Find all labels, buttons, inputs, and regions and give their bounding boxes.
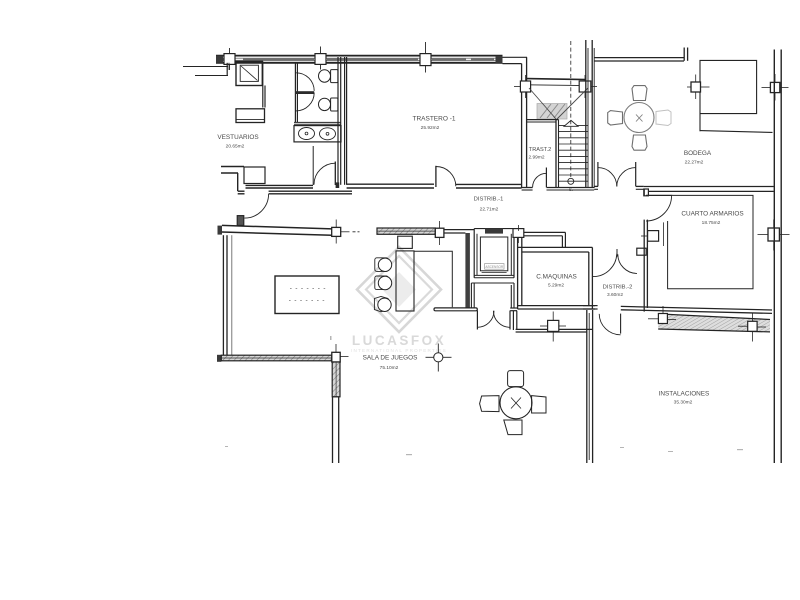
svg-text:SALA DE JUEGOS: SALA DE JUEGOS: [363, 355, 418, 362]
svg-text:22.71m2: 22.71m2: [480, 207, 499, 213]
svg-text:C.MAQUINAS: C.MAQUINAS: [536, 274, 576, 281]
svg-text:INTERNATIONAL PROPERTIES: INTERNATIONAL PROPERTIES: [351, 348, 447, 353]
svg-text:22.27m2: 22.27m2: [685, 160, 704, 166]
svg-text:ASCENSOR: ASCENSOR: [485, 265, 504, 269]
svg-text:35.30m2: 35.30m2: [674, 400, 693, 406]
svg-text:DISTRIB.-2: DISTRIB.-2: [603, 285, 633, 291]
svg-text:CUARTO ARMARIOS: CUARTO ARMARIOS: [681, 211, 743, 218]
svg-text:TRAST.2: TRAST.2: [529, 147, 551, 153]
svg-text:BODEGA: BODEGA: [684, 150, 712, 157]
svg-text:INSTALACIONES: INSTALACIONES: [659, 391, 710, 398]
svg-text:5.29m2: 5.29m2: [548, 283, 564, 289]
svg-text:18.75m2: 18.75m2: [702, 220, 721, 226]
svg-text:20.65m2: 20.65m2: [226, 144, 245, 150]
svg-text:2.99m2: 2.99m2: [529, 155, 545, 161]
svg-text:DISTRIB.-1: DISTRIB.-1: [474, 197, 504, 203]
svg-text:25.92m2: 25.92m2: [421, 125, 440, 131]
svg-text:LUCASFOX: LUCASFOX: [352, 333, 446, 348]
svg-text:75.10m2: 75.10m2: [380, 365, 399, 371]
svg-text:TRASTERO -1: TRASTERO -1: [413, 116, 456, 123]
svg-text:S.: S.: [569, 187, 573, 192]
svg-text:VESTUARIOS: VESTUARIOS: [217, 134, 258, 141]
svg-text:3.60m2: 3.60m2: [607, 292, 623, 298]
